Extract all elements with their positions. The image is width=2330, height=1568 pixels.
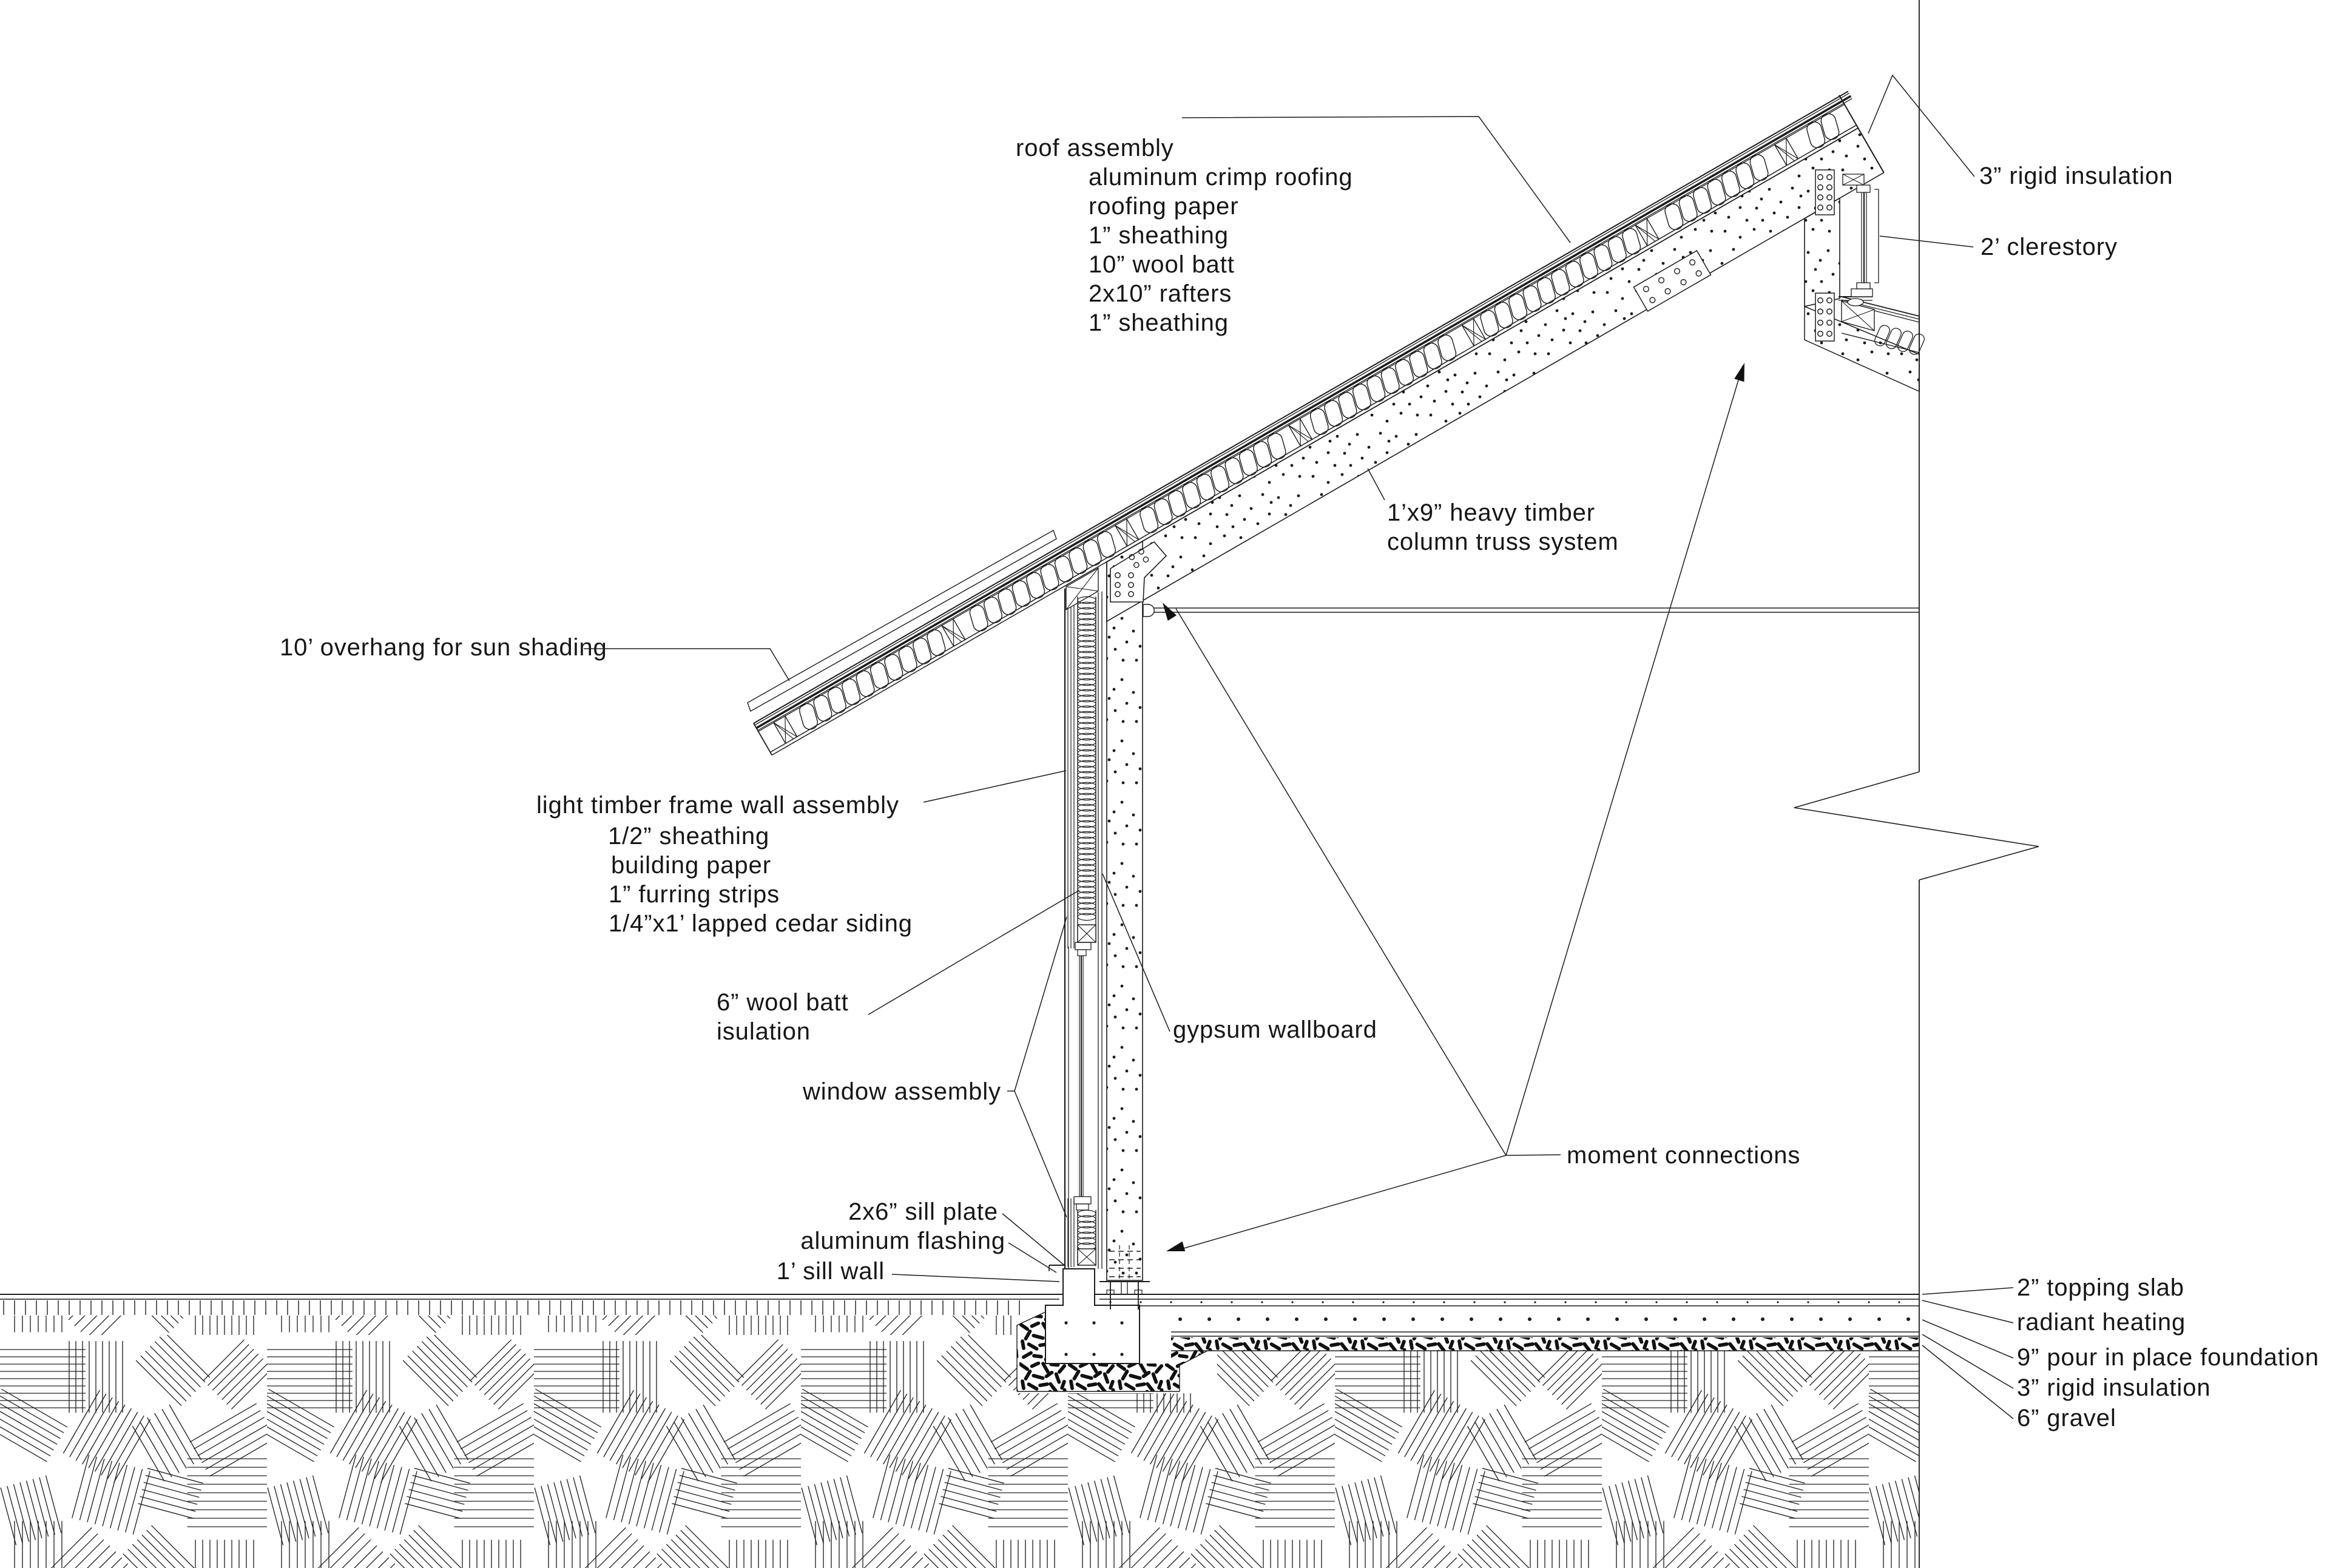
svg-text:10” wool batt: 10” wool batt <box>1089 251 1235 278</box>
svg-text:6” gravel: 6” gravel <box>2017 1405 2116 1431</box>
svg-text:2” topping slab: 2” topping slab <box>2017 1274 2184 1301</box>
svg-text:roof assembly: roof assembly <box>1016 135 1174 161</box>
svg-text:1’x9” heavy timber: 1’x9” heavy timber <box>1387 499 1595 526</box>
svg-text:moment connections: moment connections <box>1567 1142 1800 1169</box>
svg-text:1/2” sheathing: 1/2” sheathing <box>608 823 769 850</box>
svg-text:aluminum crimp roofing: aluminum crimp roofing <box>1089 164 1353 191</box>
svg-text:column truss system: column truss system <box>1387 529 1619 555</box>
svg-text:radiant heating: radiant heating <box>2017 1309 2186 1336</box>
svg-text:1/4”x1’ lapped cedar siding: 1/4”x1’ lapped cedar siding <box>609 910 913 937</box>
svg-text:3” rigid insulation: 3” rigid insulation <box>1979 163 2173 189</box>
svg-text:1” sheathing: 1” sheathing <box>1089 222 1229 249</box>
svg-text:1” furring strips: 1” furring strips <box>609 881 780 908</box>
svg-text:building paper: building paper <box>611 852 771 879</box>
svg-text:6” wool batt: 6” wool batt <box>717 989 849 1016</box>
svg-text:gypsum wallboard: gypsum wallboard <box>1173 1016 1377 1043</box>
svg-text:isulation: isulation <box>717 1018 811 1045</box>
svg-text:aluminum flashing: aluminum flashing <box>800 1228 1005 1254</box>
svg-text:10’ overhang for sun shading: 10’ overhang for sun shading <box>280 634 607 661</box>
svg-text:1” sheathing: 1” sheathing <box>1089 309 1229 336</box>
svg-text:2x10” rafters: 2x10” rafters <box>1089 280 1232 307</box>
svg-text:light timber frame wall assemb: light timber frame wall assembly <box>536 792 899 819</box>
svg-text:roofing paper: roofing paper <box>1089 193 1238 220</box>
svg-text:2’ clerestory: 2’ clerestory <box>1981 234 2118 260</box>
svg-text:2x6” sill plate: 2x6” sill plate <box>848 1198 998 1225</box>
svg-text:1’ sill wall: 1’ sill wall <box>777 1258 885 1285</box>
svg-text:9” pour in place foundation: 9” pour in place foundation <box>2017 1344 2319 1371</box>
svg-text:window assembly: window assembly <box>802 1078 1001 1105</box>
svg-text:3” rigid insulation: 3” rigid insulation <box>2017 1374 2210 1401</box>
